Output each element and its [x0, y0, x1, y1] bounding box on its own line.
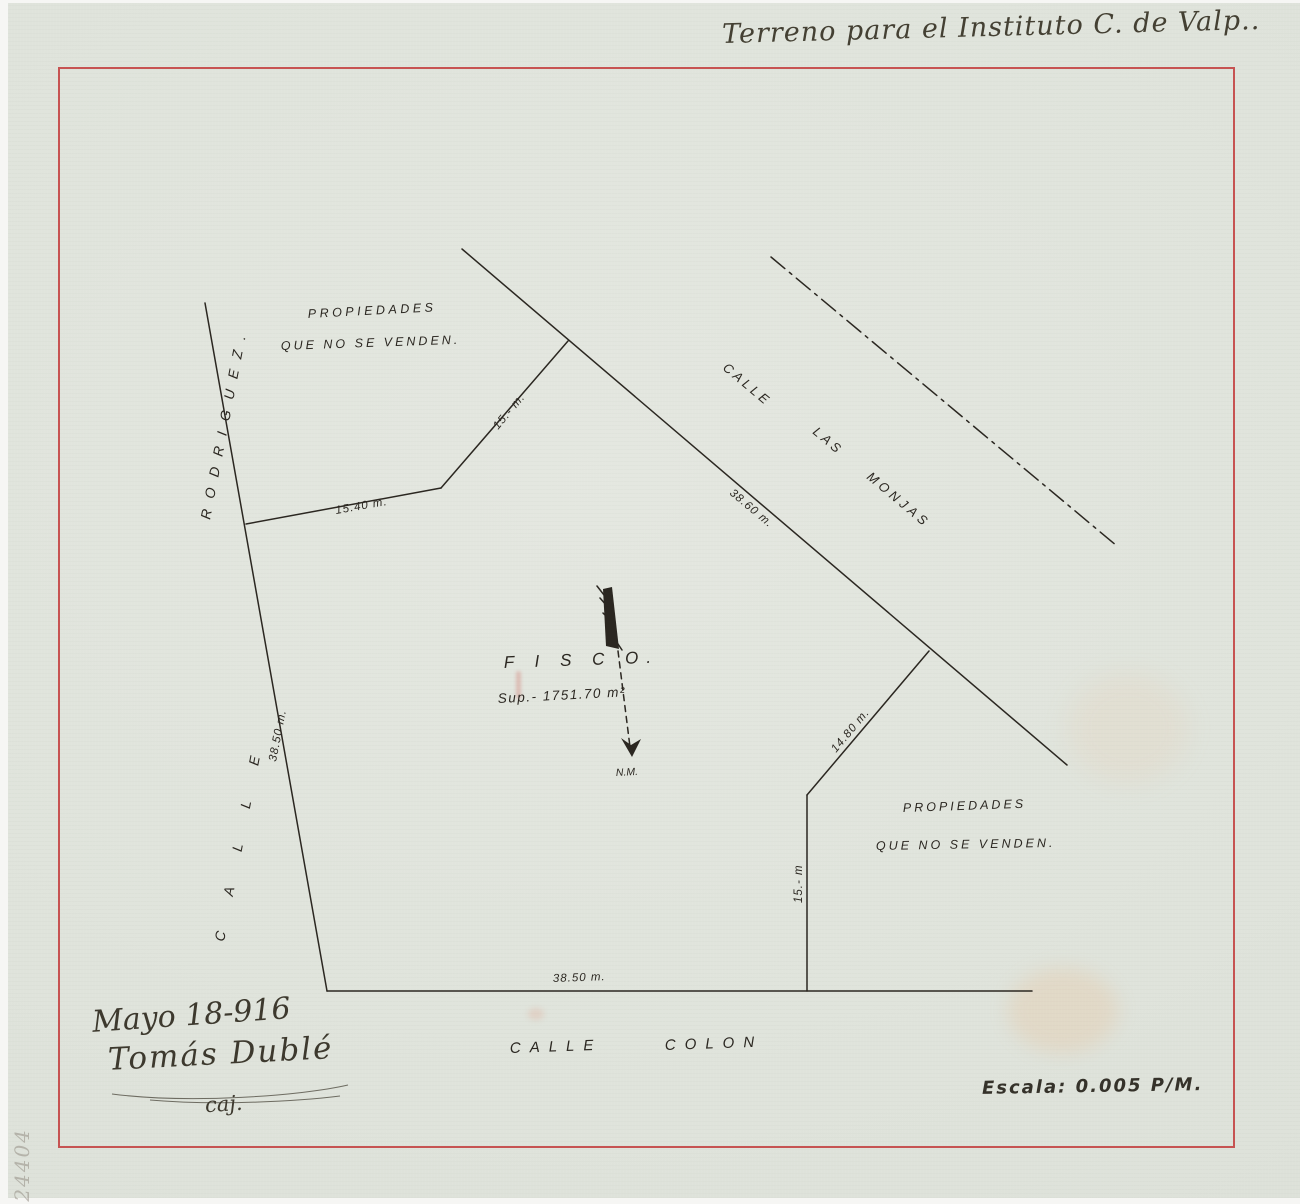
note-top-left-line1: PROPIEDADES: [307, 300, 436, 321]
parcel-area-label: Sup.- 1751.70 m²: [497, 684, 626, 706]
street-label-las-monjas-monjas: MONJAS: [864, 469, 934, 531]
property-notes: PROPIEDADES QUE NO SE VENDEN. PROPIEDADE…: [281, 300, 1056, 853]
street-label-rodriguez-calle: CALLE: [211, 719, 270, 942]
parcel-name-label: F I S C O.: [503, 648, 659, 672]
archive-number: 24404: [10, 1128, 34, 1202]
handwritten-signature-note: caj.: [204, 1091, 243, 1118]
measurement-top-diagonal: 15.- m.: [491, 391, 528, 431]
note-top-left-line2: QUE NO SE VENDEN.: [281, 333, 461, 353]
measurement-top-jog: 15.40 m.: [334, 496, 388, 517]
street-label-colon-calle: CALLE: [510, 1037, 603, 1057]
measurement-las-monjas-frontage: 38.60 m.: [727, 487, 775, 530]
street-label-rodriguez: RODRIGUEZ.: [197, 323, 250, 520]
street-label-colon-colon: COLON: [665, 1034, 764, 1054]
street-label-las-monjas-calle: CALLE: [720, 360, 775, 409]
measurement-right-side: 15.- m: [793, 864, 805, 903]
street-label-las-monjas-las: LAS: [810, 424, 847, 458]
street-axis-dash-dot-line: [771, 257, 1117, 546]
parcel-boundary-lines: [205, 249, 1117, 991]
boundary-right-diagonal: [807, 651, 929, 795]
north-arrow: N.M.: [597, 586, 641, 779]
measurement-right-diagonal: 14.80 m.: [829, 707, 872, 755]
north-arrow-label: N.M.: [616, 766, 639, 779]
north-arrow-head: [621, 738, 641, 757]
scale-label: Escala: 0.005 P/M.: [982, 1074, 1204, 1099]
parcel-labels: F I S C O. Sup.- 1751.70 m²: [497, 648, 659, 706]
measurement-colon-frontage: 38.50 m.: [553, 971, 606, 985]
note-bottom-right-line1: PROPIEDADES: [903, 797, 1027, 815]
note-bottom-right-line2: QUE NO SE VENDEN.: [876, 836, 1056, 853]
north-arrow-feather: [603, 587, 619, 649]
